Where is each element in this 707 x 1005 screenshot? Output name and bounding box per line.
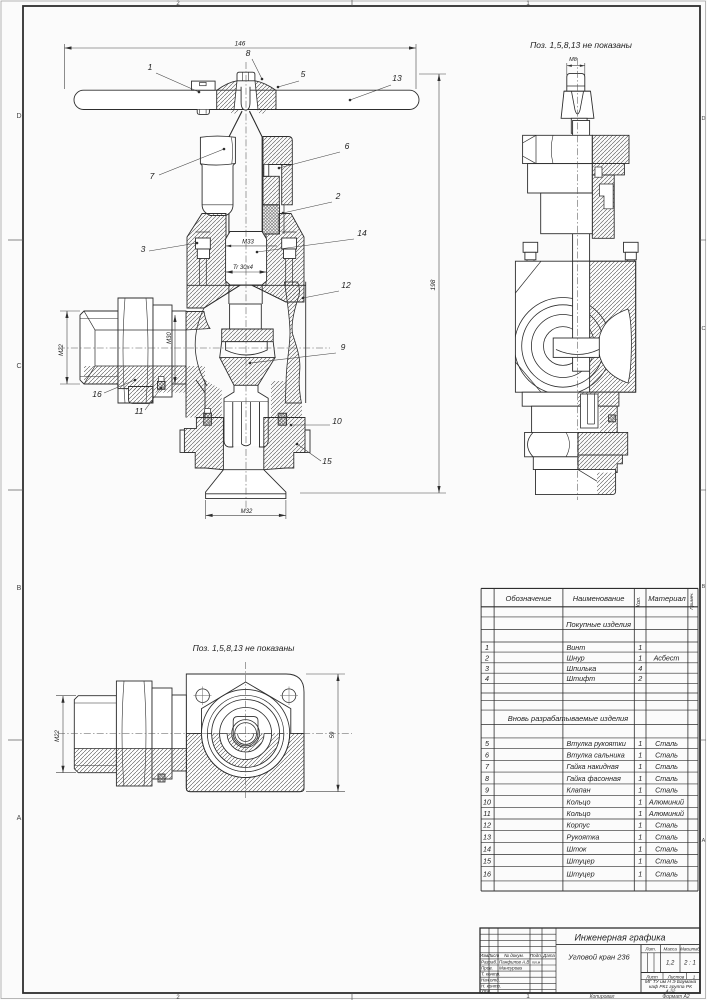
svg-text:Шток: Шток	[567, 844, 588, 853]
svg-text:Сталь: Сталь	[655, 786, 678, 795]
svg-text:A: A	[702, 838, 706, 844]
svg-text:B: B	[17, 585, 22, 592]
svg-text:2: 2	[637, 674, 642, 683]
svg-text:C: C	[16, 363, 21, 370]
svg-text:13: 13	[483, 832, 491, 841]
svg-text:М30: М30	[167, 332, 173, 344]
svg-text:М32: М32	[241, 509, 253, 515]
svg-text:1: 1	[638, 750, 642, 759]
svg-text:1,2: 1,2	[666, 961, 675, 967]
svg-text:A: A	[17, 815, 22, 822]
svg-text:Кол.: Кол.	[636, 597, 642, 608]
svg-text:Дата: Дата	[542, 953, 555, 958]
svg-text:1: 1	[638, 774, 642, 783]
svg-text:Панфилов А.В: Панфилов А.В	[499, 959, 529, 964]
svg-text:16: 16	[92, 389, 102, 399]
svg-text:1: 1	[638, 844, 642, 853]
svg-text:4-32: 4-32	[666, 988, 676, 994]
svg-text:1: 1	[148, 62, 153, 72]
svg-text:М33: М33	[242, 240, 254, 246]
svg-text:Листов: Листов	[667, 974, 685, 979]
svg-text:15: 15	[322, 456, 332, 466]
svg-text:2: 2	[335, 191, 341, 201]
svg-text:Примеч.: Примеч.	[689, 592, 694, 609]
svg-text:2: 2	[484, 653, 489, 662]
svg-text:1: 1	[638, 797, 642, 806]
svg-text:Копировал: Копировал	[590, 994, 615, 1000]
svg-text:1: 1	[638, 821, 642, 830]
svg-text:1: 1	[638, 856, 642, 865]
svg-text:Лист: Лист	[487, 953, 500, 958]
svg-text:Обозначение: Обозначение	[506, 594, 552, 603]
svg-text:Сталь: Сталь	[655, 739, 678, 748]
svg-text:Сталь: Сталь	[655, 750, 678, 759]
svg-text:15: 15	[483, 856, 492, 865]
svg-text:М22: М22	[59, 344, 65, 356]
svg-text:Сталь: Сталь	[655, 821, 678, 830]
svg-text:М8: М8	[569, 57, 578, 63]
svg-text:Штуцер: Штуцер	[567, 870, 595, 879]
svg-text:10: 10	[332, 416, 342, 426]
svg-text:Подп.: Подп.	[530, 953, 542, 958]
svg-text:Сталь: Сталь	[655, 774, 678, 783]
svg-text:Асбест: Асбест	[653, 653, 680, 662]
svg-text:4: 4	[638, 664, 642, 673]
svg-text:12: 12	[341, 280, 351, 290]
svg-text:1: 1	[485, 643, 489, 652]
svg-text:Сталь: Сталь	[655, 844, 678, 853]
svg-text:Лит.: Лит.	[644, 947, 656, 952]
svg-text:Формат А2: Формат А2	[662, 994, 690, 1000]
svg-text:Втулка рукоятки: Втулка рукоятки	[567, 739, 626, 748]
svg-text:Нач.отд.: Нач.отд.	[481, 978, 500, 983]
svg-text:Масса: Масса	[664, 947, 678, 952]
svg-text:Алюминий: Алюминий	[648, 797, 684, 806]
svg-text:Штуцер: Штуцер	[567, 856, 595, 865]
svg-text:D: D	[16, 113, 21, 120]
svg-text:1: 1	[638, 786, 642, 795]
svg-text:4: 4	[485, 674, 489, 683]
svg-text:14: 14	[483, 844, 491, 853]
svg-text:1: 1	[638, 832, 642, 841]
svg-text:Пров.: Пров.	[481, 965, 493, 970]
svg-text:10: 10	[483, 797, 491, 806]
svg-text:14: 14	[357, 228, 367, 238]
svg-text:Кольцо: Кольцо	[567, 809, 591, 818]
svg-text:Алюминий: Алюминий	[648, 809, 684, 818]
svg-text:Сталь: Сталь	[655, 856, 678, 865]
svg-text:1: 1	[638, 739, 642, 748]
svg-text:Поз. 1,5,8,13 не показаны: Поз. 1,5,8,13 не показаны	[193, 643, 296, 653]
svg-text:Клапан: Клапан	[567, 786, 591, 795]
svg-text:3: 3	[485, 664, 489, 673]
svg-text:Сталь: Сталь	[655, 870, 678, 879]
svg-text:11: 11	[483, 809, 490, 818]
svg-text:Наименование: Наименование	[573, 594, 625, 603]
svg-text:9: 9	[341, 342, 346, 352]
svg-text:Шнур: Шнур	[567, 653, 585, 662]
svg-text:198: 198	[430, 279, 437, 290]
svg-text:М22: М22	[55, 730, 61, 742]
svg-text:C: C	[702, 326, 706, 332]
svg-text:1: 1	[638, 809, 642, 818]
svg-text:Утв.: Утв.	[481, 989, 491, 994]
svg-text:Мансурова: Мансурова	[499, 965, 522, 970]
svg-text:8: 8	[246, 48, 251, 58]
svg-text:тл.м: тл.м	[532, 960, 541, 964]
svg-text:Втулка сальника: Втулка сальника	[567, 750, 625, 759]
svg-text:Поз. 1,5,8,13 не показаны: Поз. 1,5,8,13 не показаны	[530, 40, 633, 50]
svg-text:Шпилька: Шпилька	[567, 664, 597, 673]
svg-text:Сталь: Сталь	[655, 832, 678, 841]
svg-text:№ докум.: № докум.	[504, 953, 524, 958]
svg-text:Разраб.: Разраб.	[481, 959, 497, 964]
svg-text:5: 5	[301, 69, 306, 79]
svg-text:1: 1	[638, 870, 642, 879]
svg-text:11: 11	[135, 406, 144, 416]
svg-text:7: 7	[150, 171, 155, 181]
svg-text:Tr 30x4: Tr 30x4	[233, 265, 254, 271]
svg-text:Покупные изделия: Покупные изделия	[566, 620, 631, 629]
svg-text:Корпус: Корпус	[567, 821, 591, 830]
svg-text:Материал: Материал	[648, 594, 686, 603]
svg-text:3: 3	[141, 244, 146, 254]
svg-text:Сталь: Сталь	[655, 762, 678, 771]
svg-text:59: 59	[330, 731, 336, 738]
svg-text:13: 13	[392, 73, 402, 83]
svg-text:8: 8	[485, 774, 489, 783]
svg-text:9: 9	[485, 786, 489, 795]
svg-text:146: 146	[235, 41, 246, 48]
svg-text:B: B	[702, 584, 706, 590]
svg-text:Угловой кран 236: Угловой кран 236	[567, 953, 630, 962]
svg-text:1: 1	[638, 643, 642, 652]
svg-text:Гайка накидная: Гайка накидная	[567, 762, 619, 771]
svg-text:1: 1	[638, 653, 642, 662]
svg-text:Гайка фасонная: Гайка фасонная	[567, 774, 622, 783]
svg-text:Винт: Винт	[567, 643, 586, 652]
svg-text:16: 16	[483, 870, 491, 879]
svg-text:12: 12	[483, 821, 491, 830]
svg-text:6: 6	[345, 141, 350, 151]
svg-text:1: 1	[638, 762, 642, 771]
svg-text:Кольцо: Кольцо	[567, 797, 591, 806]
svg-text:Т. контр.: Т. контр.	[481, 972, 500, 977]
svg-text:2 : 1: 2 : 1	[683, 961, 696, 967]
svg-text:Инженерная графика: Инженерная графика	[574, 933, 665, 943]
svg-text:Рукоятка: Рукоятка	[567, 832, 600, 841]
svg-text:Масштаб: Масштаб	[680, 947, 700, 952]
svg-text:6: 6	[485, 750, 489, 759]
svg-text:Штифт: Штифт	[567, 674, 596, 683]
svg-text:D: D	[702, 116, 706, 122]
svg-text:Лист: Лист	[645, 974, 658, 979]
svg-text:Вновь разрабатываемые изделия: Вновь разрабатываемые изделия	[508, 714, 628, 723]
